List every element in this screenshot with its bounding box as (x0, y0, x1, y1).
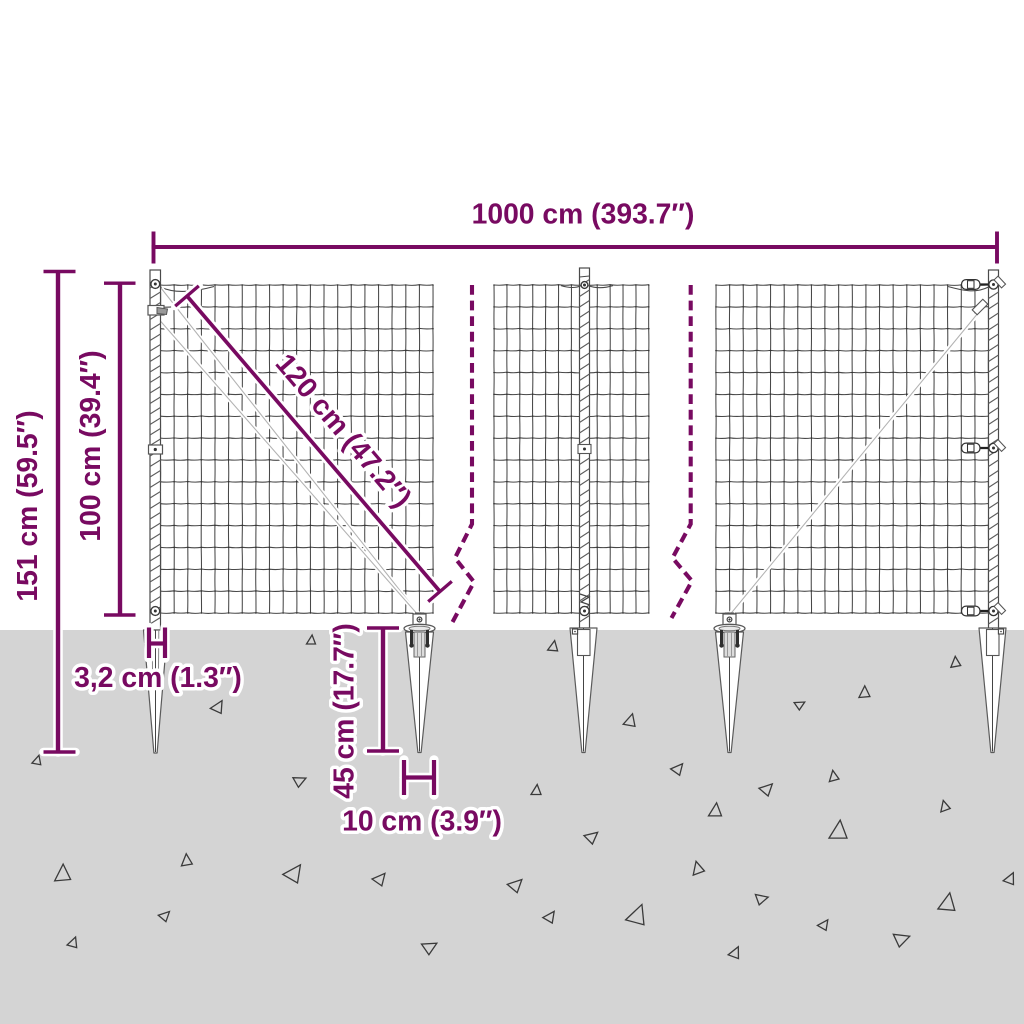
svg-text:10 cm (3.9″): 10 cm (3.9″) (342, 805, 502, 837)
svg-text:3,2 cm (1.3″): 3,2 cm (1.3″) (74, 661, 242, 693)
svg-text:151 cm (59.5″): 151 cm (59.5″) (11, 410, 43, 601)
svg-text:45 cm (17.7″): 45 cm (17.7″) (328, 623, 360, 799)
svg-text:100 cm (39.4″): 100 cm (39.4″) (74, 350, 106, 541)
svg-text:1000 cm (393.7″): 1000 cm (393.7″) (472, 198, 695, 230)
